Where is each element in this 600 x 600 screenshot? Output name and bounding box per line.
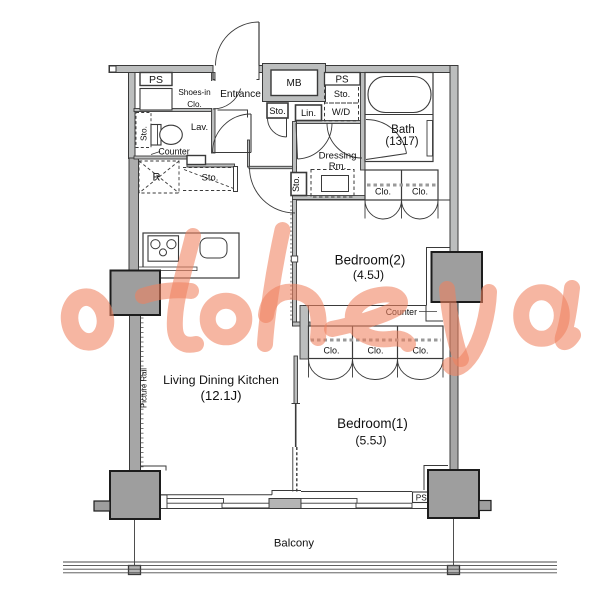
svg-text:Sto.: Sto.	[139, 126, 149, 141]
svg-text:(1317): (1317)	[385, 136, 418, 148]
svg-text:Picture Rail: Picture Rail	[140, 368, 149, 408]
svg-text:PS: PS	[335, 75, 349, 86]
svg-text:W/D: W/D	[332, 106, 350, 117]
svg-text:Clo.: Clo.	[412, 187, 428, 197]
svg-text:Bedroom(1): Bedroom(1)	[337, 416, 408, 431]
svg-text:(12.1J): (12.1J)	[200, 388, 241, 403]
svg-text:R: R	[153, 172, 161, 184]
svg-text:Bedroom(2): Bedroom(2)	[335, 253, 406, 268]
svg-text:(5.5J): (5.5J)	[355, 434, 386, 448]
svg-text:Clo.: Clo.	[375, 187, 391, 197]
svg-text:Shoes-in: Shoes-in	[178, 88, 211, 97]
svg-text:Sto.: Sto.	[269, 106, 285, 116]
svg-text:Dressing: Dressing	[319, 151, 357, 162]
svg-text:Lin.: Lin.	[301, 107, 316, 118]
svg-text:PS: PS	[149, 74, 163, 86]
svg-text:Balcony: Balcony	[274, 538, 315, 550]
svg-text:Counter: Counter	[158, 147, 189, 157]
svg-text:Bath: Bath	[391, 124, 415, 136]
svg-text:Lav.: Lav.	[191, 122, 208, 133]
svg-text:MB: MB	[287, 78, 302, 89]
svg-text:PS: PS	[416, 493, 428, 503]
svg-text:Rm.: Rm.	[329, 161, 347, 172]
svg-text:Sto.: Sto.	[334, 89, 350, 99]
svg-text:(4.5J): (4.5J)	[353, 268, 384, 282]
svg-text:Clo.: Clo.	[187, 100, 202, 109]
svg-text:Living Dining Kitchen: Living Dining Kitchen	[163, 373, 279, 387]
svg-text:Sto.: Sto.	[291, 176, 301, 192]
svg-text:Clo.: Clo.	[323, 346, 339, 356]
svg-text:Entrance: Entrance	[220, 89, 261, 100]
svg-text:Sto.: Sto.	[202, 172, 219, 183]
